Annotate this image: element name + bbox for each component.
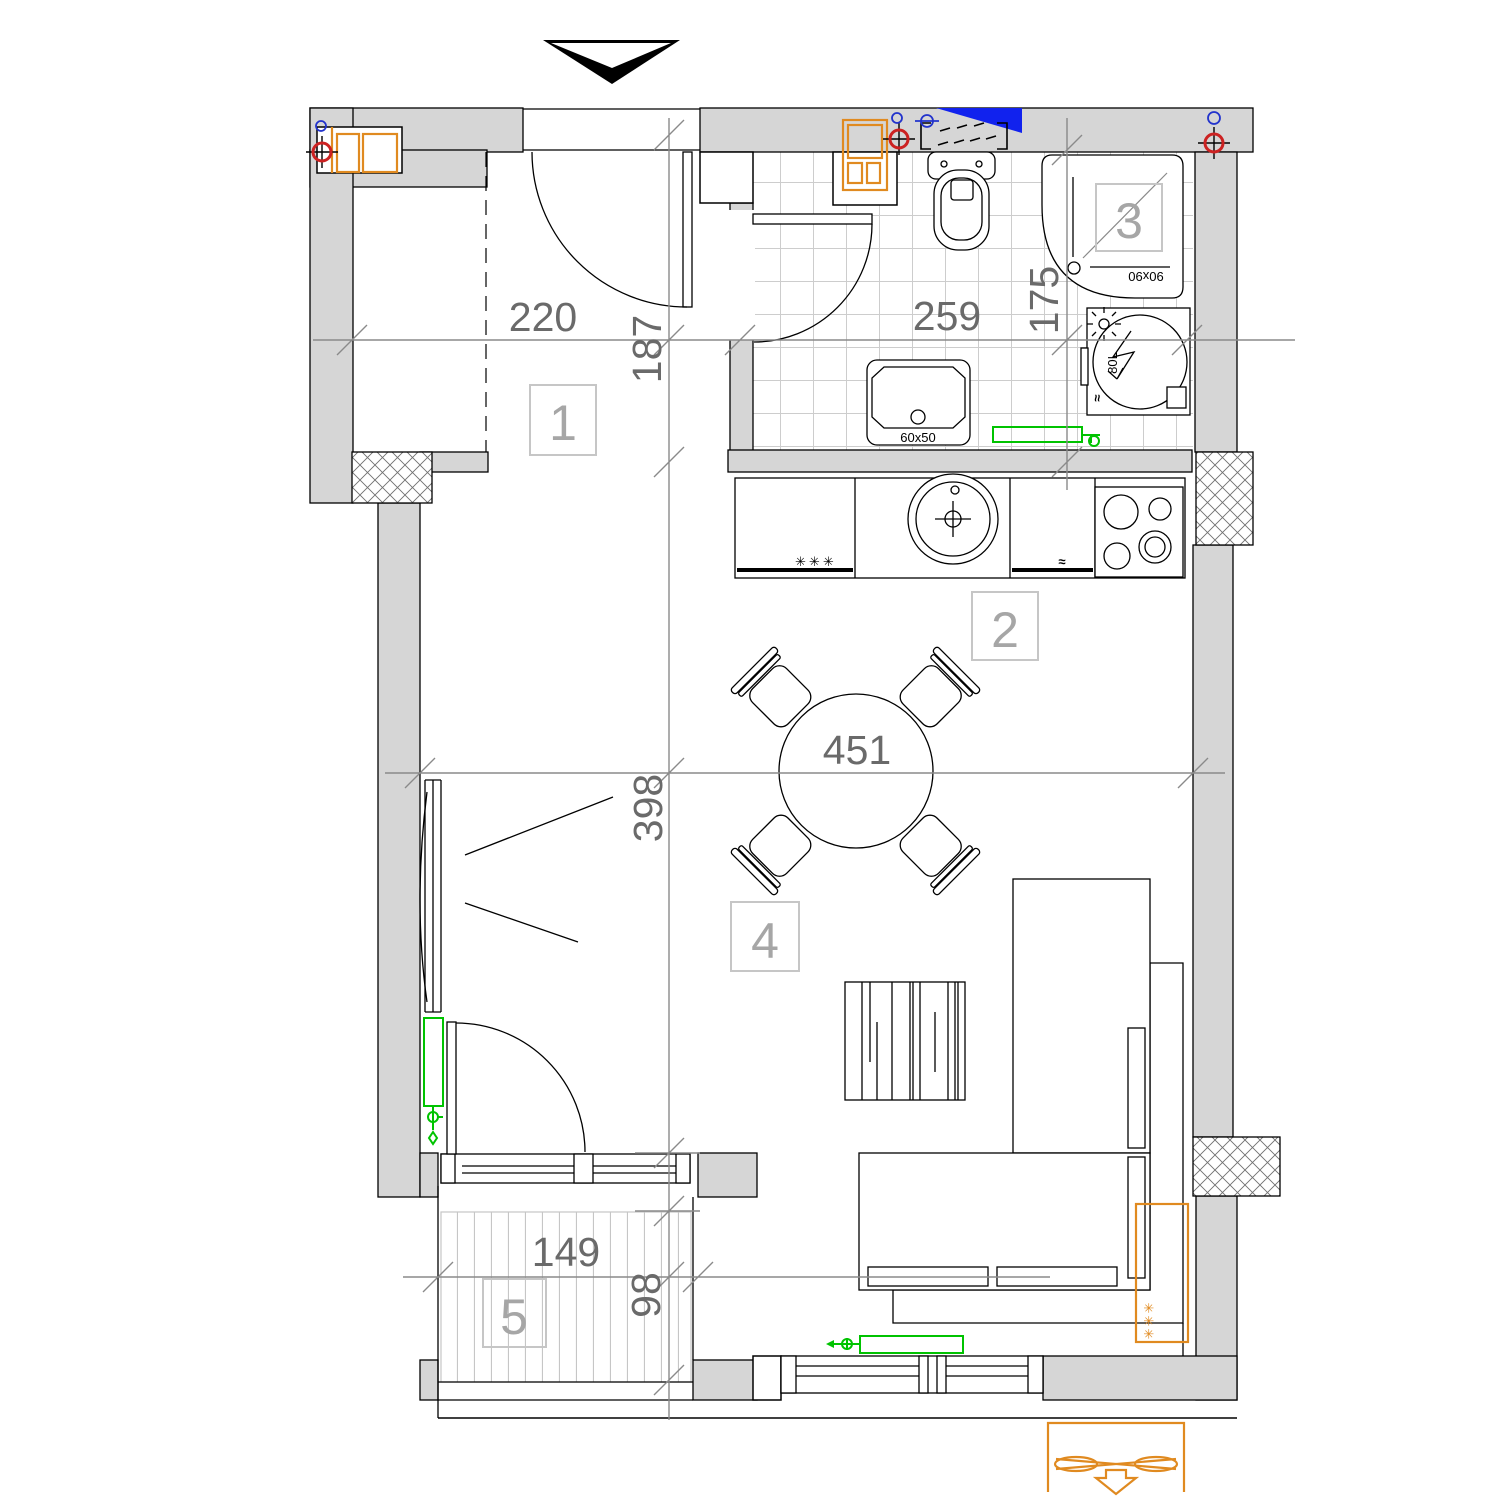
dim-balcony-width: 149 — [532, 1229, 600, 1275]
dim-hall-depth: 187 — [624, 315, 670, 383]
window-post — [937, 1356, 946, 1393]
radiator-body — [860, 1336, 963, 1353]
wall-segment — [1043, 1356, 1237, 1400]
window-post — [781, 1356, 796, 1393]
heater-detail — [1167, 387, 1186, 408]
ac-outdoor-unit-icon — [1048, 1423, 1184, 1494]
washbasin-size-label: 60x50 — [900, 430, 935, 445]
dim-living-depth: 398 — [625, 774, 671, 842]
balcony-door-window — [441, 1022, 690, 1183]
kitchen-sink-icon — [908, 474, 998, 564]
wall-segment — [1195, 152, 1237, 452]
washbasin-icon: 60x50 — [867, 360, 970, 445]
heater-bracket — [1081, 348, 1088, 385]
window-bow — [420, 792, 427, 1002]
water-heater-icon: 80L ≈ — [1081, 307, 1190, 415]
radiator-arrow — [826, 1340, 834, 1348]
radiator-horizontal — [826, 1336, 963, 1353]
entrance-door — [523, 109, 700, 307]
toilet-icon — [928, 152, 995, 250]
airflow-arrow — [1096, 1470, 1136, 1494]
window-post — [1028, 1356, 1043, 1393]
balcony-pillar — [693, 1360, 757, 1400]
tv-cabinet — [845, 982, 965, 1100]
room-label-living: 4 — [751, 913, 779, 969]
window-post — [676, 1154, 690, 1183]
window-band — [781, 1356, 1043, 1393]
wall-segment — [420, 1153, 438, 1197]
door-swing-arc — [456, 1023, 585, 1152]
window-post — [441, 1154, 455, 1183]
door-swing-arc — [532, 152, 687, 307]
dim-bath-width: 259 — [913, 293, 981, 339]
window-post — [919, 1356, 928, 1393]
door-opening-lines — [523, 109, 700, 150]
bottom-window — [781, 1356, 1043, 1393]
tv-cabinet-outline — [845, 982, 965, 1100]
toilet-flush — [951, 180, 973, 200]
door-leaf — [753, 214, 872, 224]
heater-capacity-label: 80L — [1105, 352, 1120, 374]
entry-niche — [700, 152, 753, 203]
room-label-hall: 1 — [549, 395, 577, 451]
window-frame — [425, 780, 441, 1012]
dim-bath-depth: 175 — [1021, 266, 1067, 334]
door-leaf — [447, 1022, 456, 1154]
floor-plan-drawing: 90x90 60x50 80L ≈ ✳✳✳ ≈ — [0, 0, 1500, 1500]
dim-living-width: 451 — [823, 727, 891, 773]
north-arrow-icon — [543, 40, 680, 84]
window-opening-lines — [465, 797, 613, 942]
wall-segment — [1193, 545, 1233, 1137]
floor-plan-canvas: 90x90 60x50 80L ≈ ✳✳✳ ≈ — [0, 0, 1500, 1500]
radiator-vertical — [424, 1018, 443, 1144]
shower-drain — [1068, 262, 1080, 274]
heater-hot-water-mark: ≈ — [1090, 394, 1105, 401]
stove-icon — [1095, 487, 1183, 577]
wall-pier — [698, 1153, 757, 1197]
door-opening — [728, 210, 755, 340]
freezer-mark: ✳✳✳ — [795, 554, 837, 569]
kitchen-counter: ✳✳✳ ≈ — [735, 474, 1185, 578]
hatched-wall — [1193, 1137, 1280, 1196]
room-label-balcony: 5 — [500, 1289, 528, 1345]
radiator-arrow — [429, 1132, 437, 1144]
living-room-window — [420, 780, 613, 1012]
corner-sofa — [859, 879, 1183, 1356]
fan-cross — [1056, 1459, 1176, 1469]
window-post — [574, 1154, 593, 1183]
balcony-pillar — [420, 1360, 438, 1400]
wall-segment — [378, 503, 420, 1197]
washbasin-drain — [911, 410, 925, 424]
hatched-wall — [1196, 452, 1253, 545]
wall-segment — [728, 450, 1192, 472]
door-leaf — [683, 152, 692, 307]
window-band — [441, 1154, 690, 1183]
radiator-body — [424, 1018, 443, 1106]
room-label-bathroom: 3 — [1115, 193, 1143, 249]
ac-mark: ✳✳✳ — [1141, 1303, 1156, 1342]
shower-size-label: 90x90 — [1128, 269, 1163, 284]
sofa-cushion — [1128, 1028, 1145, 1148]
room-label-kitchen: 2 — [991, 602, 1019, 658]
dim-balcony-depth: 98 — [623, 1272, 669, 1318]
dim-hall-width: 220 — [509, 294, 577, 340]
hatched-wall — [352, 452, 432, 503]
dishwasher-mark: ≈ — [1058, 554, 1065, 569]
wall-pier-white — [753, 1356, 781, 1400]
sink-tap-hole — [951, 486, 959, 494]
